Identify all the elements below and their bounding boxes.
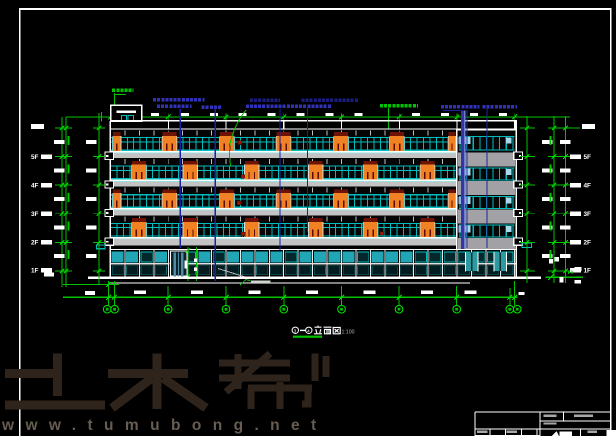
svg-text:1:100: 1:100 [342,330,355,336]
svg-text:5F: 5F [584,154,592,161]
svg-text:3F: 3F [584,211,592,218]
svg-text:3F: 3F [31,211,39,218]
svg-text:4: 4 [307,328,310,333]
svg-text:3: 3 [294,328,297,333]
svg-text:1F: 1F [584,268,592,275]
svg-text:www.tumubong.net: www.tumubong.net [1,417,328,434]
svg-text:1F: 1F [31,268,39,275]
svg-text:2F: 2F [584,240,592,247]
svg-text:5F: 5F [31,154,39,161]
svg-text:4F: 4F [31,183,39,190]
svg-text:2F: 2F [31,240,39,247]
svg-text:4F: 4F [584,183,592,190]
